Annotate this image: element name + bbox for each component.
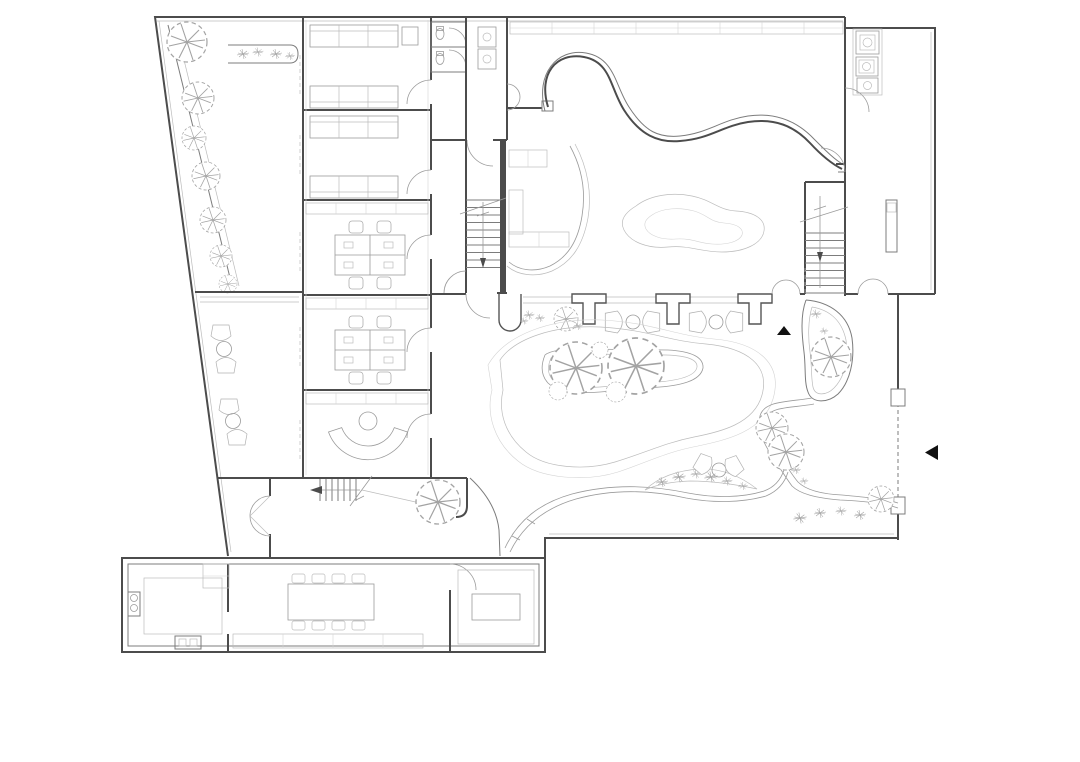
fan-chair-icon	[219, 399, 239, 415]
office-room-1	[306, 203, 428, 289]
floor-plan-canvas	[0, 0, 1080, 762]
office-chair-icon	[377, 372, 391, 384]
colonnade	[195, 279, 898, 335]
office-wing	[300, 17, 431, 478]
tree-icon	[192, 162, 220, 190]
curved-wall	[542, 52, 845, 172]
dining-room	[233, 574, 423, 648]
sofa-room-1	[310, 25, 418, 108]
floor-inlay	[622, 194, 764, 252]
shrub-icon	[811, 310, 822, 319]
shrub-icon	[836, 507, 847, 516]
stair-lounge	[507, 144, 589, 275]
multipurpose-hall	[507, 17, 869, 296]
fan-chair-icon	[211, 325, 231, 341]
office-chair-icon	[349, 221, 363, 233]
shrub-icon	[270, 49, 282, 59]
east-service-corridor	[800, 29, 897, 294]
service-strip	[122, 558, 545, 652]
office-chair-icon	[377, 277, 391, 289]
shrub-icon	[820, 328, 828, 335]
tree-icon	[219, 275, 237, 293]
tree-icon	[416, 480, 460, 524]
tree-icon	[182, 82, 214, 114]
shrub-icon	[253, 48, 264, 57]
tree-icon	[182, 126, 206, 150]
sofa-room-2	[310, 116, 398, 198]
office-chair-icon	[377, 316, 391, 328]
office-chair-icon	[377, 221, 391, 233]
fan-chair-icon	[689, 311, 706, 333]
tree-icon	[167, 22, 207, 62]
shrub-icon	[793, 513, 806, 524]
east-stair	[800, 182, 848, 294]
courtyard-garden	[211, 300, 938, 556]
fan-chair-icon	[643, 311, 660, 333]
fan-chair-icon	[722, 454, 745, 479]
shrub-icon	[800, 478, 808, 485]
garden-path-east	[756, 398, 898, 524]
shrub-icon	[738, 482, 748, 490]
tree-icon	[868, 486, 894, 512]
kitchen	[128, 564, 229, 652]
floor-plan-svg	[0, 0, 1080, 762]
entry-vestibule	[250, 476, 460, 536]
shrub-icon	[814, 508, 826, 518]
tree-icon	[768, 434, 804, 470]
shrub-icon	[237, 49, 249, 59]
shrub-icon	[285, 52, 295, 60]
teardrop-bed	[802, 300, 853, 401]
office-chair-icon	[349, 277, 363, 289]
t-column	[738, 294, 772, 324]
fan-chair-icon	[216, 358, 236, 374]
lounge-room	[450, 564, 534, 652]
shrub-icon	[704, 472, 717, 483]
tree-icon	[210, 245, 232, 267]
fan-chair-icon	[605, 311, 622, 333]
office-chair-icon	[349, 372, 363, 384]
tree-icon	[200, 207, 226, 233]
fan-chair-icon	[227, 430, 247, 446]
colonnade-seating-2	[689, 311, 742, 333]
fan-chair-icon	[726, 311, 743, 333]
shrub-icon	[535, 314, 545, 322]
garden-path	[470, 452, 788, 556]
planting-island	[488, 320, 775, 478]
office-chair-icon	[349, 316, 363, 328]
t-column	[656, 294, 690, 324]
sanitary-core	[431, 17, 507, 166]
shrub-icon	[854, 510, 866, 520]
shrub-icon	[524, 311, 535, 320]
tree-icon	[811, 337, 851, 377]
colonnade-seating-1	[605, 311, 659, 333]
central-stair	[444, 140, 507, 293]
entrance-arrow-left-icon	[925, 445, 938, 460]
entrance-arrow-up-icon	[777, 326, 791, 335]
